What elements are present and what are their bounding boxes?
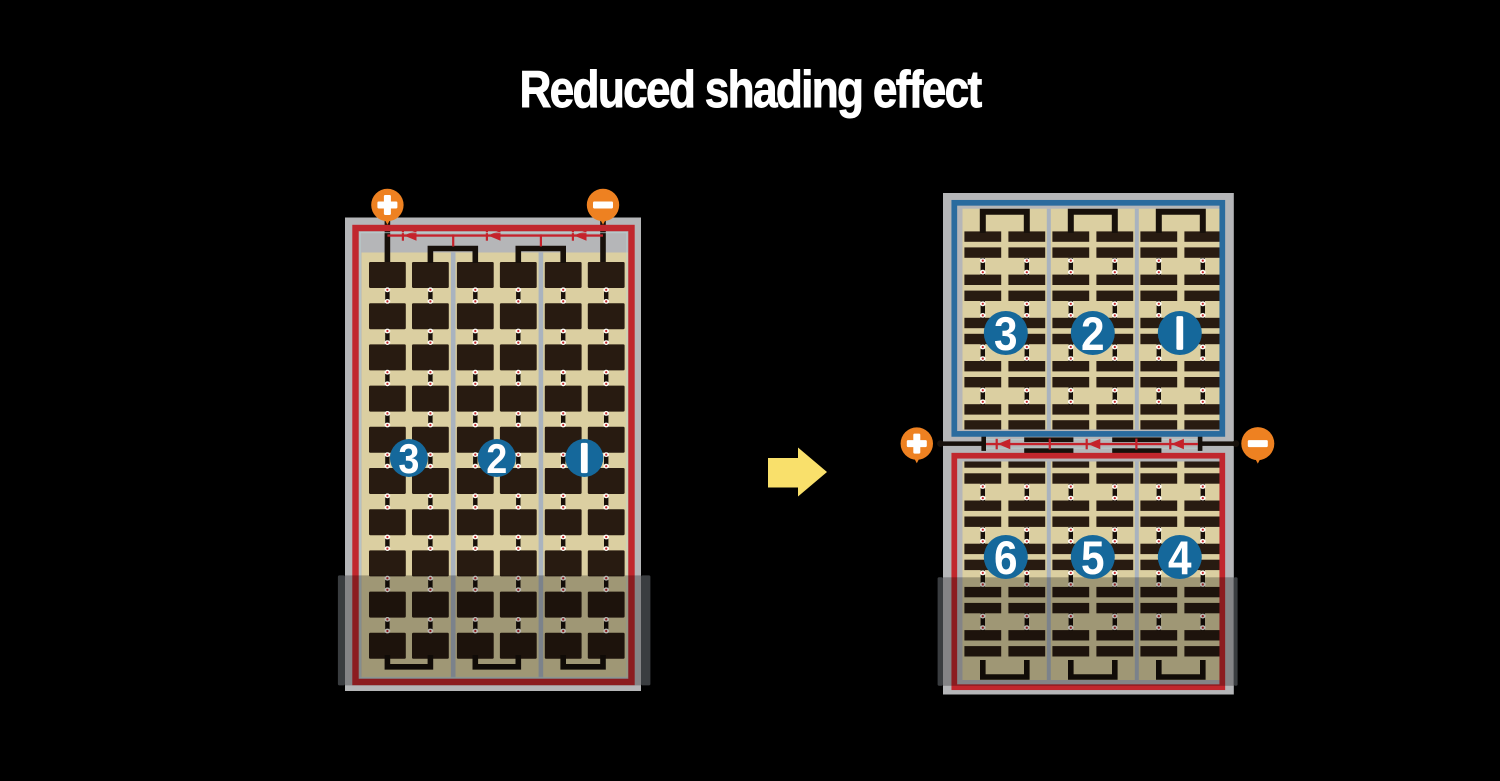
svg-text:2: 2 (1081, 309, 1105, 361)
svg-text:6: 6 (994, 533, 1018, 585)
svg-text:2: 2 (486, 436, 507, 482)
svg-text:Reduced shading effect: Reduced shading effect (519, 61, 982, 119)
svg-text:3: 3 (398, 436, 419, 482)
svg-text:5: 5 (1081, 533, 1105, 585)
svg-text:3: 3 (994, 309, 1018, 361)
svg-text:4: 4 (1168, 533, 1192, 585)
